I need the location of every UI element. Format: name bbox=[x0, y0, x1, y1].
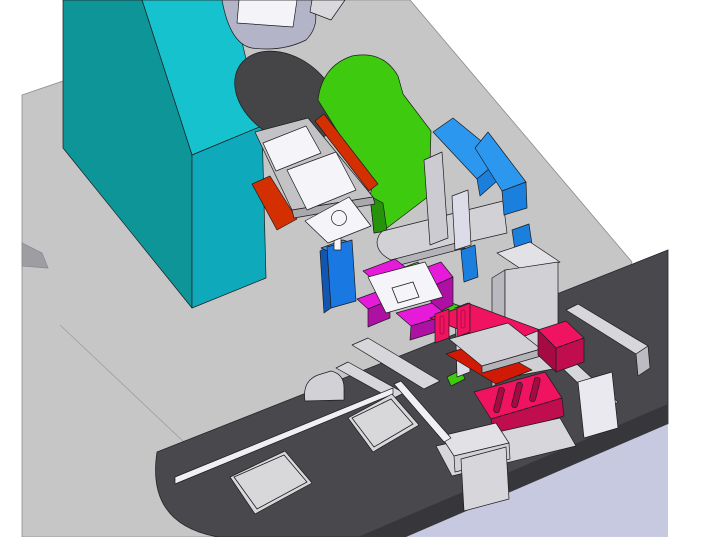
carriage-post-1 bbox=[435, 309, 449, 343]
rail-end-block bbox=[578, 372, 618, 438]
support-column-right-face bbox=[192, 126, 266, 308]
guide-wall-mid bbox=[452, 190, 471, 250]
carriage-post-2 bbox=[457, 303, 470, 337]
motor-label-plate bbox=[237, 0, 297, 27]
actuator-box-front bbox=[327, 240, 356, 308]
sensor-plate-hole bbox=[332, 211, 347, 226]
blue-sliver-1 bbox=[461, 245, 478, 282]
cad-render-canvas bbox=[0, 0, 705, 537]
cad-render-viewport bbox=[0, 0, 705, 537]
